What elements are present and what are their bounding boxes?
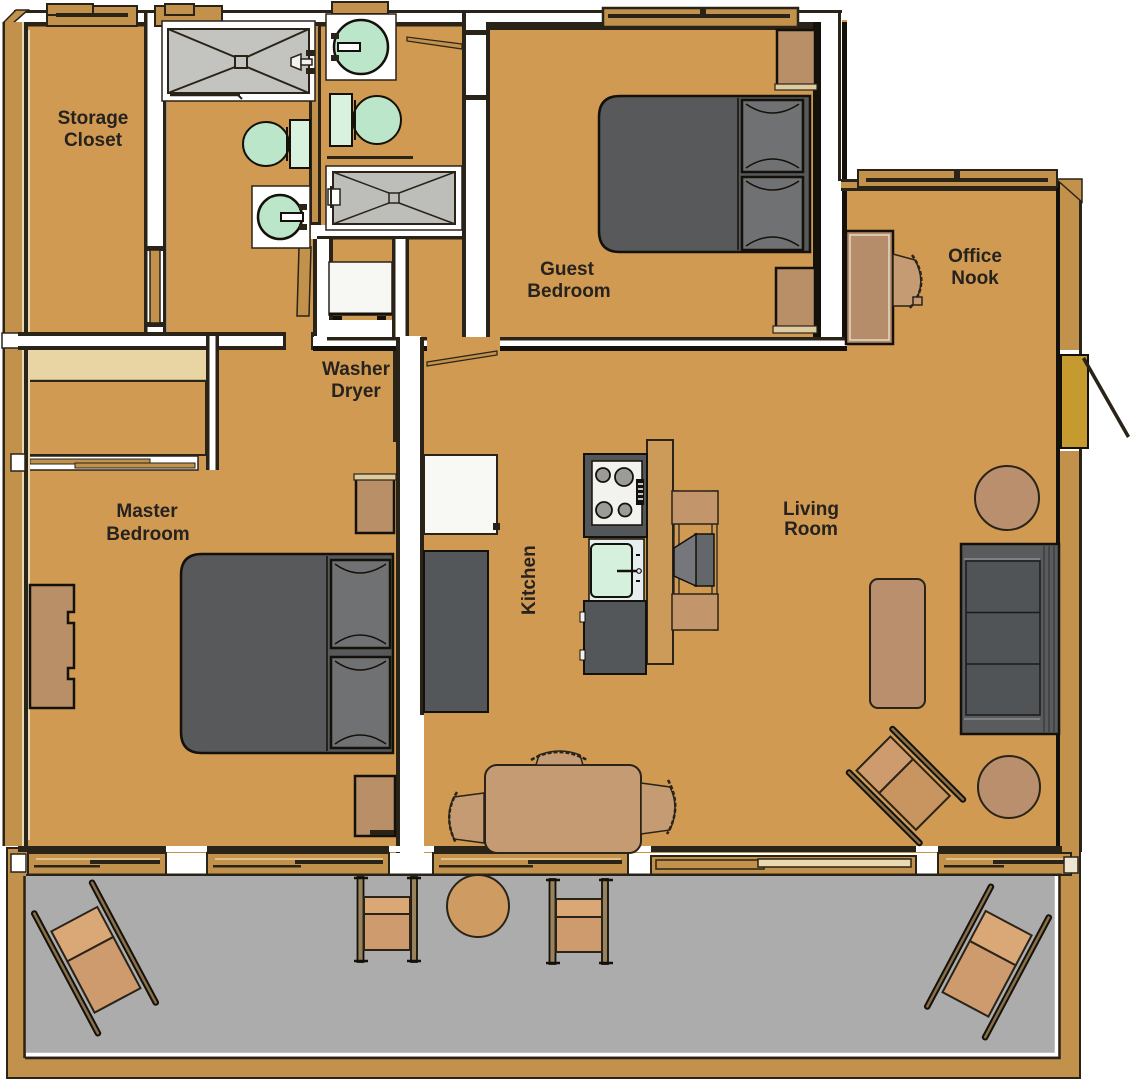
svg-text:Dryer: Dryer: [331, 381, 381, 402]
svg-text:Kitchen: Kitchen: [519, 545, 540, 615]
svg-text:Office: Office: [948, 246, 1002, 267]
svg-text:Closet: Closet: [64, 130, 123, 151]
svg-text:Nook: Nook: [951, 268, 999, 289]
svg-text:Room: Room: [784, 519, 838, 540]
svg-text:Guest: Guest: [540, 259, 595, 280]
svg-text:Bedroom: Bedroom: [527, 281, 610, 302]
svg-text:Bedroom: Bedroom: [106, 524, 189, 545]
svg-text:Master: Master: [116, 501, 178, 522]
svg-text:Living: Living: [783, 499, 839, 520]
svg-text:Washer: Washer: [322, 359, 391, 380]
svg-text:Storage: Storage: [58, 108, 129, 129]
